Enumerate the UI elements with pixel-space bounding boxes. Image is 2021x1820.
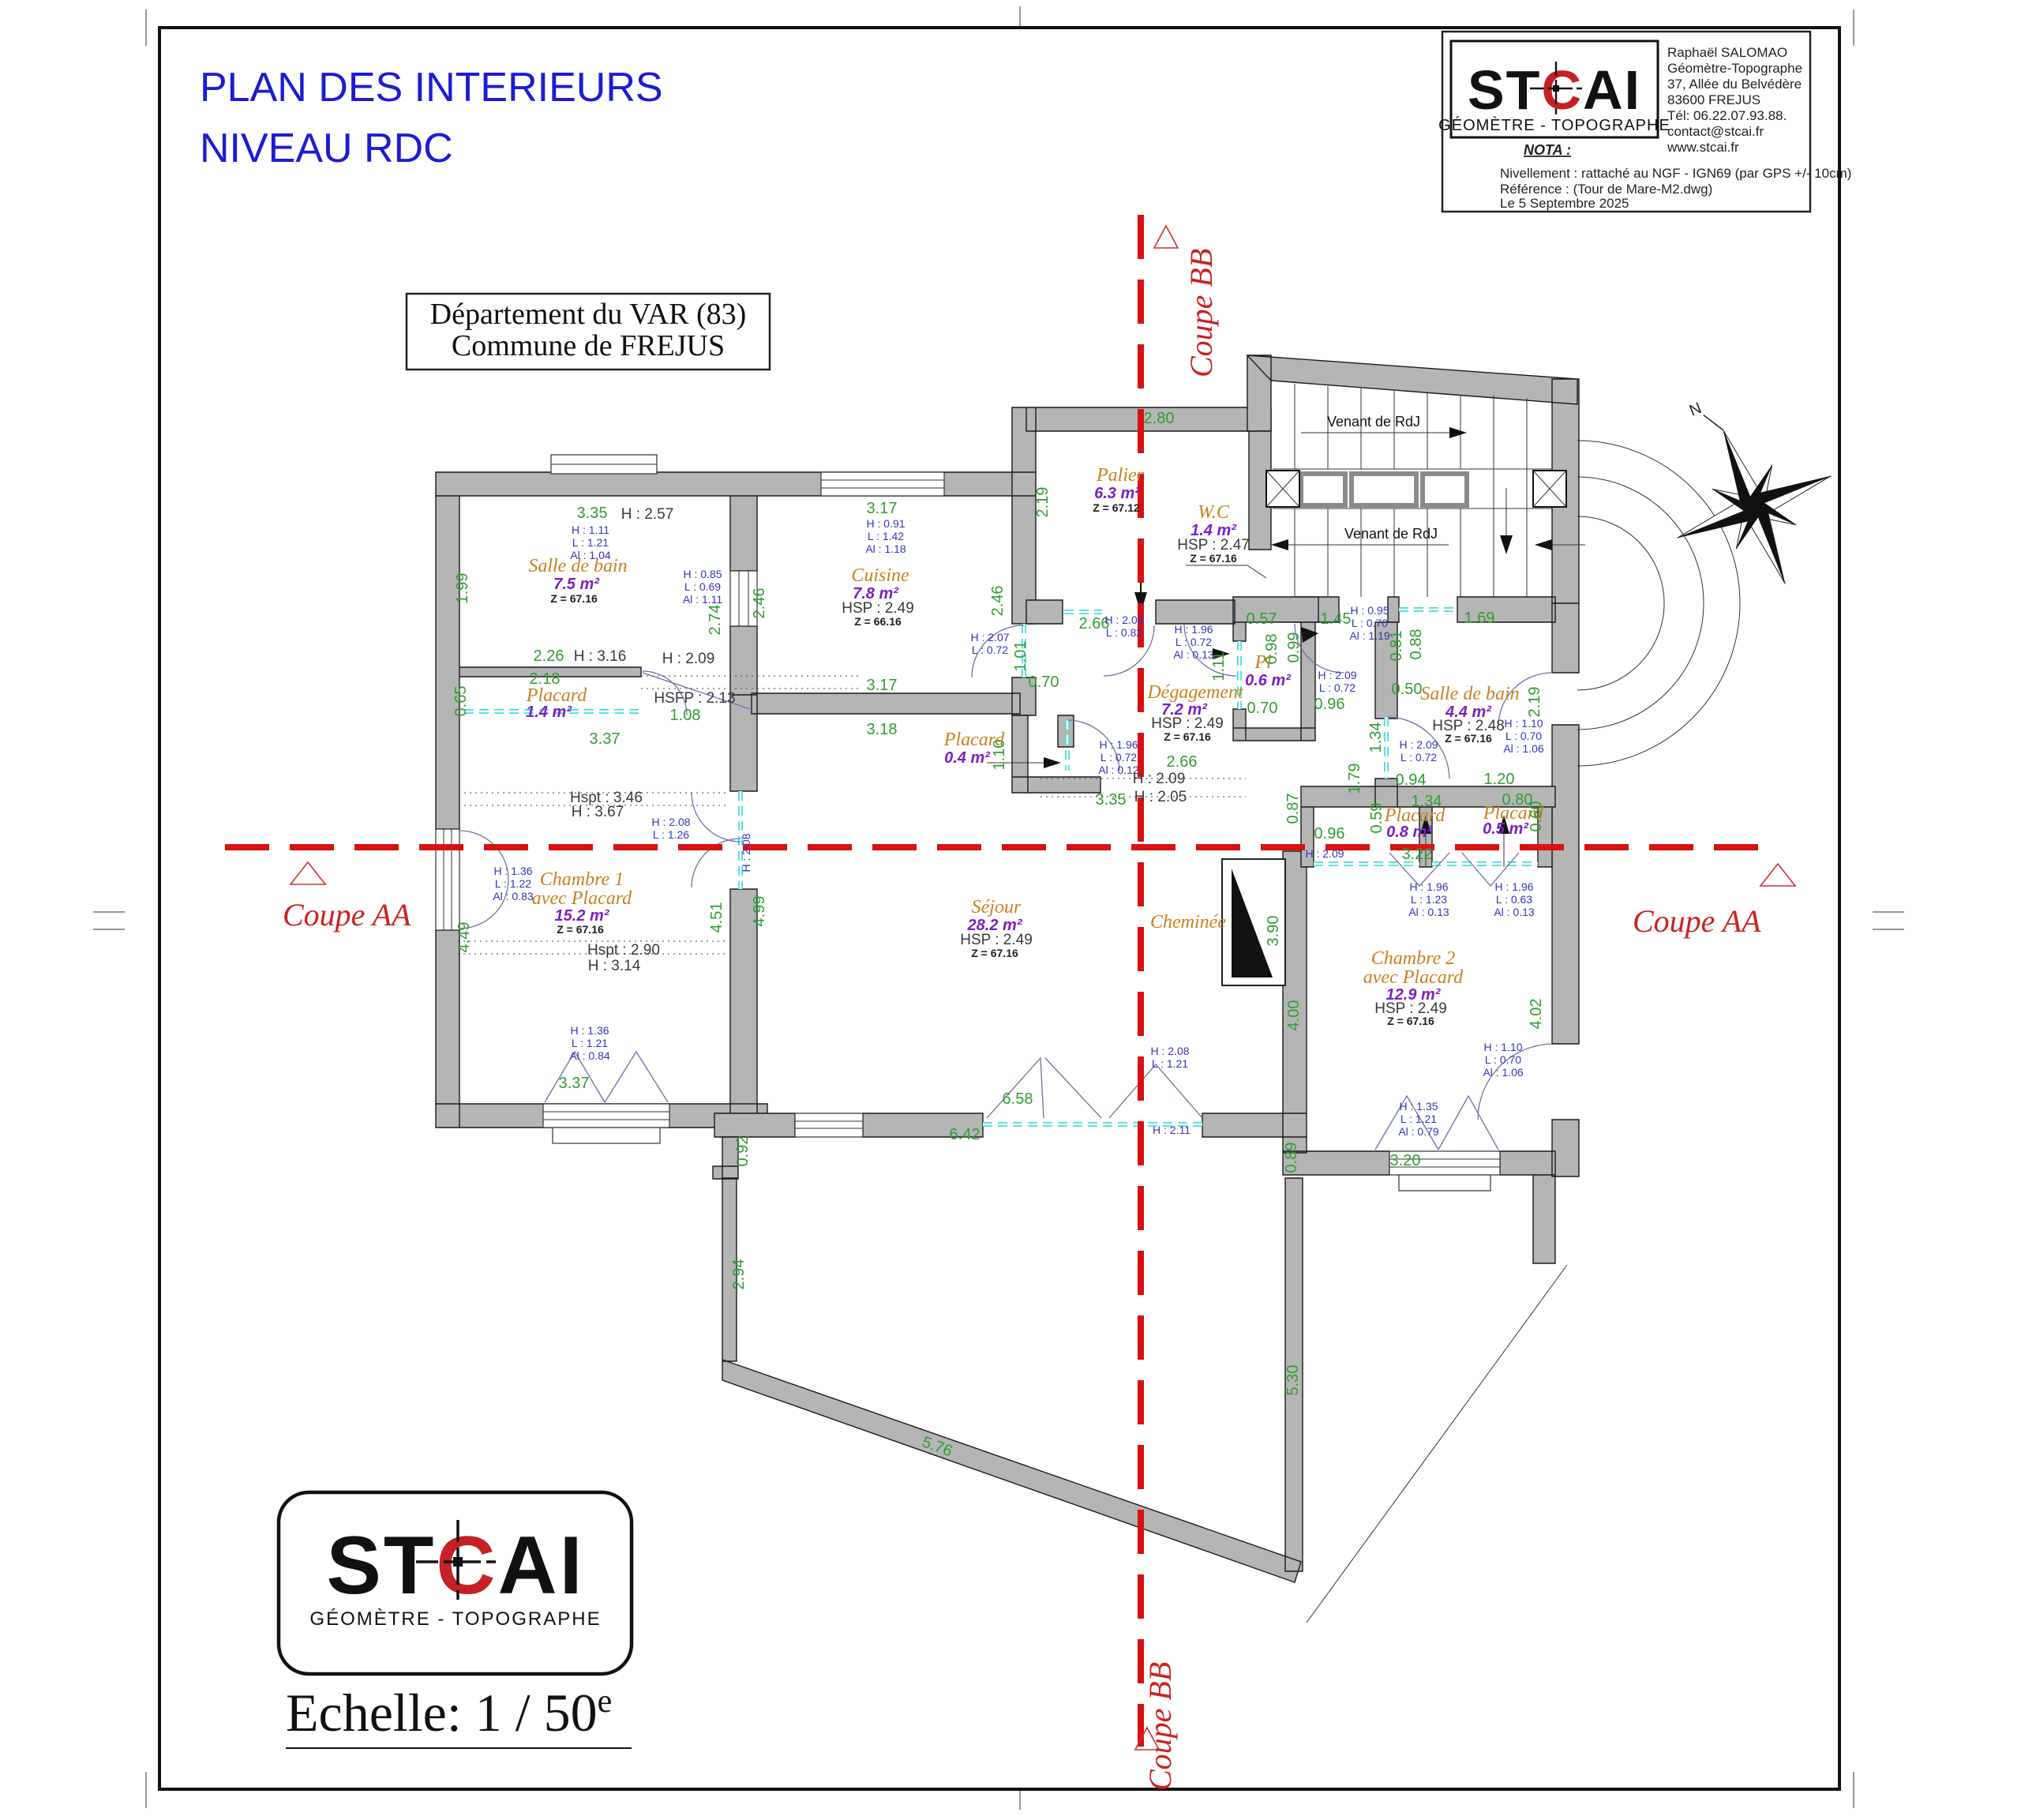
room-name: Dégagement bbox=[1146, 682, 1244, 703]
spec: H : 1.35 bbox=[1399, 1100, 1438, 1113]
height-note: HSFP : 2.13 bbox=[654, 690, 735, 707]
spec: L : 0.72 bbox=[972, 644, 1008, 656]
spec: Al : 1.18 bbox=[865, 542, 906, 555]
room-name: Cuisine bbox=[851, 565, 909, 586]
contact-phone: Tél: 06.22.07.93.88. bbox=[1667, 108, 1787, 123]
room-name: Séjour bbox=[972, 897, 1022, 918]
room-name: Chambre 2 bbox=[1371, 948, 1455, 969]
height-note: Hspt : 2.90 bbox=[587, 942, 660, 959]
dim: 2.80 bbox=[1144, 410, 1175, 427]
stairs-label-bottom: Venant de RdJ bbox=[1344, 526, 1438, 542]
dim: 3.35 bbox=[577, 505, 608, 522]
dim: 6.42 bbox=[950, 1126, 981, 1143]
height-note: H : 3.67 bbox=[572, 804, 624, 820]
dim: 2.46 bbox=[989, 586, 1007, 617]
dim: 1.01 bbox=[1012, 641, 1029, 672]
room-area: 0.6 m² bbox=[1245, 672, 1292, 689]
spec: Al : 1.19 bbox=[1349, 629, 1390, 642]
spec: L : 0.70 bbox=[1505, 730, 1542, 742]
dim: 0.94 bbox=[1396, 771, 1427, 789]
dim: 0.92 bbox=[734, 1136, 752, 1167]
room-z: Z = 67.16 bbox=[550, 592, 598, 605]
compass-north-label: N bbox=[1687, 400, 1704, 420]
room-hsp: HSP : 2.49 bbox=[842, 600, 914, 617]
nota-date: Le 5 Septembre 2025 bbox=[1500, 196, 1629, 211]
contact-website: www.stcai.fr bbox=[1667, 140, 1739, 155]
height-note: H : 2.09 bbox=[662, 651, 715, 667]
spec: Al : 1.06 bbox=[1503, 742, 1544, 755]
floor-plan-svg: PLAN DES INTERIEURS NIVEAU RDC Départeme… bbox=[0, 0, 2021, 1820]
dim: 3.17 bbox=[867, 677, 898, 694]
spec: L : 0.70 bbox=[1485, 1053, 1521, 1066]
dim: 4.00 bbox=[1285, 1000, 1303, 1031]
dim: 6.58 bbox=[1003, 1090, 1033, 1108]
dim: 3.20 bbox=[1390, 1152, 1421, 1169]
spec: H : 2.09 bbox=[1305, 847, 1344, 860]
height-note: H : 3.16 bbox=[574, 648, 627, 665]
dim: 0.65 bbox=[452, 686, 470, 717]
spec: Al : 0.83 bbox=[493, 890, 534, 902]
height-note: H : 2.05 bbox=[1134, 789, 1187, 805]
dim: 0.70 bbox=[1029, 674, 1059, 691]
dim: 1.34 bbox=[1412, 793, 1442, 810]
room-hsp: HSP : 2.49 bbox=[1151, 715, 1224, 732]
dim: 3.22 bbox=[1402, 846, 1433, 863]
spec: L : 1.23 bbox=[1411, 893, 1447, 906]
dim: 1.69 bbox=[1464, 610, 1495, 627]
dim: 2.19 bbox=[1034, 487, 1052, 518]
room-z: Z = 67.16 bbox=[1164, 730, 1211, 743]
spec: L : 0.69 bbox=[684, 580, 721, 593]
spec: H : 1.11 bbox=[572, 523, 609, 536]
dim: 3.37 bbox=[559, 1075, 590, 1092]
info-box: STCAI GÉOMÈTRE - TOPOGRAPHE Raphaël SALO… bbox=[1438, 32, 1851, 212]
dim: 2.26 bbox=[534, 647, 564, 665]
spec: L : 0.70 bbox=[1352, 617, 1388, 629]
dim: 3.37 bbox=[590, 730, 621, 748]
location-line1: Département du VAR (83) bbox=[430, 298, 747, 331]
spec: H : 1.10 bbox=[1504, 717, 1543, 730]
dim: 3.17 bbox=[867, 500, 898, 517]
height-note: H : 2.57 bbox=[621, 506, 674, 523]
dim: 0.98 bbox=[1263, 634, 1280, 665]
spec: L : 1.22 bbox=[495, 877, 531, 890]
stcai-logo-subtitle: GÉOMÈTRE - TOPOGRAPHE bbox=[1438, 116, 1670, 134]
stairs-label-top: Venant de RdJ bbox=[1327, 414, 1420, 430]
spec: H : 2.08 bbox=[1104, 614, 1143, 626]
room-name: W.C bbox=[1198, 502, 1230, 523]
nota-line2: Référence : (Tour de Mare-M2.dwg) bbox=[1500, 182, 1712, 197]
dim: 1.20 bbox=[1484, 771, 1515, 788]
room-name: avec Placard bbox=[1363, 967, 1464, 988]
dim: 4.51 bbox=[708, 902, 726, 933]
room-z: Z = 67.16 bbox=[971, 947, 1018, 959]
spec: Al : 1.06 bbox=[1483, 1066, 1524, 1079]
dim: 0.89 bbox=[1283, 1143, 1300, 1173]
dim: 0.87 bbox=[1284, 794, 1302, 824]
nota-label: NOTA : bbox=[1524, 142, 1571, 158]
footer-logo: STCAI GÉOMÈTRE - TOPOGRAPHE Echelle: 1 /… bbox=[279, 1492, 632, 1748]
spec: H : 2.09 bbox=[1399, 738, 1438, 751]
spec: Al : 1.04 bbox=[570, 549, 611, 561]
coupe-bb-label-bottom: Coupe BB bbox=[1142, 1662, 1178, 1791]
contact-city: 83600 FREJUS bbox=[1667, 92, 1760, 107]
dim: 0.88 bbox=[1408, 629, 1425, 660]
spec: H : 1.96 bbox=[1409, 880, 1448, 893]
contact-role: Géomètre-Topographe bbox=[1667, 61, 1802, 76]
room-z: Z = 67.16 bbox=[1387, 1015, 1434, 1027]
dim: 0.99 bbox=[1285, 632, 1303, 663]
spec: H : 2.11 bbox=[1153, 1124, 1190, 1136]
spec: L : 0.72 bbox=[1100, 751, 1137, 764]
spec: H : 1.36 bbox=[570, 1024, 609, 1037]
room-area: 0.4 m² bbox=[944, 749, 991, 767]
dim: 0.57 bbox=[1247, 610, 1277, 628]
spec: H : 2.08 bbox=[1150, 1045, 1189, 1057]
room-name: Salle de bain bbox=[1420, 684, 1519, 704]
page-title-line2: NIVEAU RDC bbox=[200, 126, 453, 171]
spec: H : 2.07 bbox=[970, 631, 1009, 644]
room-area: 0.8 m² bbox=[1386, 824, 1433, 841]
spec: H : 0.95 bbox=[1350, 604, 1389, 617]
dim: 2.18 bbox=[530, 670, 561, 688]
contact-name: Raphaël SALOMAO bbox=[1667, 45, 1787, 60]
room-hsp: HSP : 2.47 bbox=[1177, 537, 1250, 554]
contact-email: contact@stcai.fr bbox=[1667, 124, 1764, 139]
location-box: Département du VAR (83) Commune de FREJU… bbox=[407, 294, 770, 370]
dim: 4.49 bbox=[456, 922, 473, 953]
coupe-aa-label-left: Coupe AA bbox=[283, 897, 411, 933]
dim: 3.90 bbox=[1265, 916, 1282, 947]
spec: Al : 0.13 bbox=[1173, 648, 1214, 661]
height-note: H : 3.14 bbox=[588, 958, 641, 974]
spec: H : 1.96 bbox=[1099, 738, 1138, 751]
dim: 1.99 bbox=[454, 573, 471, 604]
spec: Al : 0.84 bbox=[569, 1049, 610, 1062]
spec: L : 1.26 bbox=[653, 828, 689, 841]
dim: 0.50 bbox=[1392, 681, 1423, 698]
north-compass-icon: N bbox=[1632, 364, 1862, 615]
dim: 5.30 bbox=[1284, 1365, 1302, 1396]
spec: L : 1.21 bbox=[1152, 1057, 1188, 1070]
room-area: 7.5 m² bbox=[553, 576, 600, 593]
stcai-logo-subtitle: GÉOMÈTRE - TOPOGRAPHE bbox=[309, 1608, 601, 1630]
height-note: H : 2.09 bbox=[1133, 771, 1186, 787]
room-area: 0.5 m² bbox=[1483, 820, 1529, 838]
room-z: Z = 67.16 bbox=[557, 923, 604, 936]
page-title-line1: PLAN DES INTERIEURS bbox=[200, 65, 663, 111]
dim: 0.60 bbox=[1528, 801, 1545, 832]
dim: 1.45 bbox=[1321, 610, 1352, 628]
spec: H : 2.08 bbox=[651, 816, 690, 828]
spec: Al : 0.13 bbox=[1408, 906, 1449, 918]
spec: Al : 0.79 bbox=[1398, 1125, 1439, 1138]
spec: H : 1.96 bbox=[1174, 623, 1213, 636]
contact-street: 37, Allée du Belvédère bbox=[1667, 77, 1802, 92]
room-area: 1.4 m² bbox=[526, 704, 572, 721]
spec: H : 0.85 bbox=[683, 568, 722, 580]
spec: L : 0.63 bbox=[1496, 893, 1532, 906]
dim: 1.10 bbox=[991, 740, 1008, 771]
dim: 1.08 bbox=[670, 707, 701, 724]
spec: H : 2.08 bbox=[740, 833, 752, 872]
room-area: 6.3 m² bbox=[1094, 485, 1141, 502]
scale-label: Echelle: 1 / 50e bbox=[286, 1683, 612, 1743]
dim: 2.74 bbox=[707, 605, 724, 636]
spec: Al : 0.13 bbox=[1494, 906, 1535, 918]
room-name: avec Placard bbox=[532, 888, 632, 909]
dim: 3.35 bbox=[1096, 791, 1127, 809]
room-hsp: HSP : 2.49 bbox=[960, 932, 1033, 948]
location-line2: Commune de FREJUS bbox=[452, 329, 725, 362]
coupe-aa-label-right: Coupe AA bbox=[1633, 903, 1761, 939]
coupe-bb-label-top: Coupe BB bbox=[1183, 249, 1219, 377]
room-z: Z = 67.12 bbox=[1093, 501, 1140, 514]
room-z: Z = 66.16 bbox=[854, 615, 902, 628]
plan-sheet: PLAN DES INTERIEURS NIVEAU RDC Départeme… bbox=[0, 0, 2021, 1820]
spec: L : 1.21 bbox=[1400, 1113, 1437, 1125]
dim: 4.99 bbox=[751, 896, 768, 927]
spec: H : 1.96 bbox=[1494, 880, 1533, 893]
dim: 0.96 bbox=[1314, 696, 1345, 713]
dim: 0.59 bbox=[1368, 803, 1385, 834]
dim: 0.96 bbox=[1314, 825, 1345, 842]
spec: L : 1.42 bbox=[868, 530, 904, 542]
nota-line1: Nivellement : rattaché au NGF - IGN69 (p… bbox=[1500, 166, 1851, 181]
dim: 2.94 bbox=[730, 1259, 748, 1290]
spec: Al : 1.11 bbox=[683, 593, 723, 606]
room-z: Z = 67.16 bbox=[1190, 552, 1237, 565]
dim: 4.02 bbox=[1528, 999, 1545, 1030]
dim: 3.18 bbox=[867, 721, 898, 738]
dim: 2.19 bbox=[1526, 687, 1543, 718]
room-name: Palier bbox=[1096, 465, 1145, 486]
spec: L : 0.72 bbox=[1319, 681, 1355, 694]
dim: 0.81 bbox=[1388, 631, 1405, 662]
spec: L : 0.72 bbox=[1400, 751, 1437, 764]
spec: L : 0.72 bbox=[1175, 636, 1212, 648]
spec: L : 1.21 bbox=[572, 1037, 608, 1049]
spec: L : 1.21 bbox=[572, 536, 609, 549]
spec: H : 2.09 bbox=[1318, 669, 1356, 681]
room-area: 15.2 m² bbox=[555, 907, 610, 925]
spec: H : 0.91 bbox=[866, 517, 905, 530]
room-z: Z = 67.16 bbox=[1445, 732, 1492, 745]
dim: 0.70 bbox=[1247, 700, 1278, 717]
room-name: Cheminée bbox=[1150, 912, 1226, 933]
spec: L : 0.82 bbox=[1106, 626, 1142, 639]
room-name: Chambre 1 bbox=[540, 869, 624, 890]
spec: H : 1.10 bbox=[1483, 1041, 1522, 1053]
dim: 2.66 bbox=[1167, 753, 1198, 771]
spec: H : 1.36 bbox=[493, 865, 532, 877]
dim: 2.46 bbox=[751, 588, 768, 619]
dim: 1.79 bbox=[1346, 764, 1363, 794]
dim: 1.34 bbox=[1367, 722, 1385, 753]
